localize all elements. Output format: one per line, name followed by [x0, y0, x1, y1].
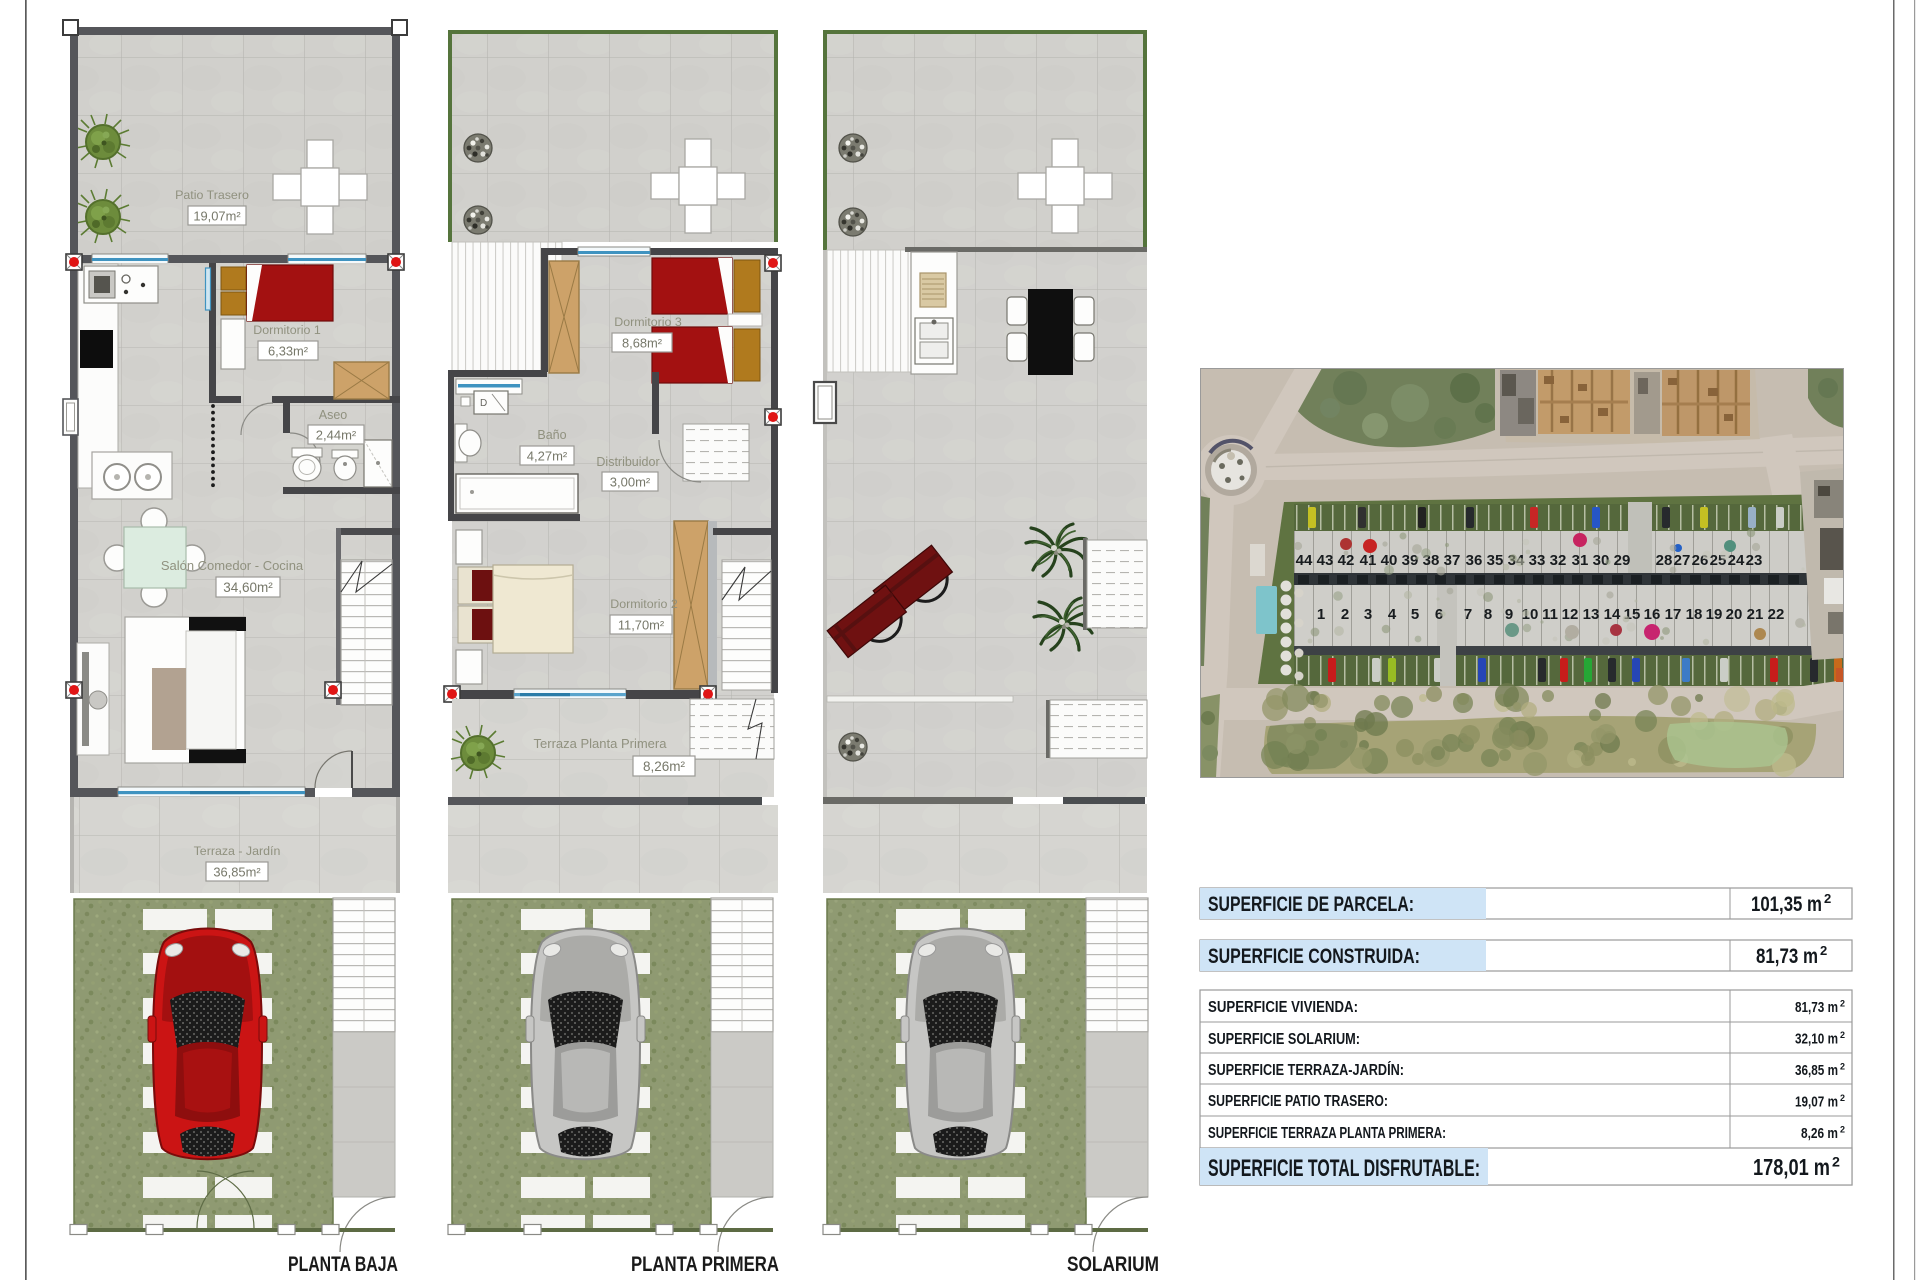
svg-text:SOLARIUM: SOLARIUM [1067, 1252, 1159, 1276]
svg-text:SUPERFICIE TERRAZA-JARDÍN:: SUPERFICIE TERRAZA-JARDÍN: [1208, 1062, 1404, 1079]
svg-text:4,27m²: 4,27m² [527, 449, 568, 464]
svg-text:SUPERFICIE CONSTRUIDA:: SUPERFICIE CONSTRUIDA: [1208, 945, 1420, 968]
svg-text:81,73 m: 81,73 m [1795, 1000, 1838, 1016]
svg-text:36,85m²: 36,85m² [213, 865, 261, 880]
svg-text:19,07 m: 19,07 m [1795, 1095, 1838, 1111]
svg-text:SUPERFICIE SOLARIUM:: SUPERFICIE SOLARIUM: [1208, 1031, 1360, 1048]
svg-text:8,26 m: 8,26 m [1801, 1126, 1838, 1142]
svg-text:Dormitorio 1: Dormitorio 1 [253, 323, 321, 337]
svg-text:2: 2 [1840, 1093, 1845, 1103]
svg-text:Salón Comedor - Cocina: Salón Comedor - Cocina [161, 558, 304, 573]
svg-text:2,44m²: 2,44m² [316, 428, 357, 443]
svg-text:Distribuidor: Distribuidor [596, 455, 659, 469]
svg-text:32,10 m: 32,10 m [1795, 1032, 1838, 1048]
svg-text:PLANTA BAJA: PLANTA BAJA [288, 1252, 398, 1276]
svg-text:178,01 m: 178,01 m [1753, 1154, 1830, 1180]
svg-text:36,85 m: 36,85 m [1795, 1063, 1838, 1079]
svg-text:Dormitorio 3: Dormitorio 3 [614, 315, 682, 329]
svg-text:SUPERFICIE PATIO TRASERO:: SUPERFICIE PATIO TRASERO: [1208, 1093, 1388, 1110]
svg-text:SUPERFICIE DE PARCELA:: SUPERFICIE DE PARCELA: [1208, 893, 1414, 916]
svg-text:Terraza - Jardín: Terraza - Jardín [194, 844, 281, 858]
svg-text:2: 2 [1840, 1124, 1845, 1134]
svg-text:11,70m²: 11,70m² [618, 618, 665, 633]
svg-text:2: 2 [1832, 1154, 1840, 1170]
svg-text:PLANTA PRIMERA: PLANTA PRIMERA [631, 1252, 779, 1276]
svg-text:2: 2 [1824, 891, 1831, 906]
svg-text:SUPERFICIE TERRAZA PLANTA PRIM: SUPERFICIE TERRAZA PLANTA PRIMERA: [1208, 1125, 1446, 1142]
svg-text:2: 2 [1840, 1030, 1845, 1040]
svg-text:SUPERFICIE VIVIENDA:: SUPERFICIE VIVIENDA: [1208, 999, 1358, 1016]
svg-text:SUPERFICIE TOTAL DISFRUTABLE:: SUPERFICIE TOTAL DISFRUTABLE: [1208, 1155, 1480, 1182]
svg-text:2: 2 [1840, 1061, 1845, 1071]
svg-text:Aseo: Aseo [319, 408, 348, 422]
svg-text:6,33m²: 6,33m² [268, 344, 309, 359]
svg-text:101,35 m: 101,35 m [1751, 893, 1822, 916]
svg-text:2: 2 [1840, 998, 1845, 1008]
svg-text:D: D [480, 398, 487, 409]
svg-text:3,00m²: 3,00m² [610, 475, 651, 490]
svg-text:Terraza Planta Primera: Terraza Planta Primera [534, 736, 668, 751]
svg-text:2: 2 [1820, 943, 1827, 958]
svg-text:8,26m²: 8,26m² [643, 759, 686, 774]
svg-text:Patio Trasero: Patio Trasero [175, 188, 249, 202]
svg-text:Dormitorio 2: Dormitorio 2 [610, 597, 678, 611]
svg-text:81,73 m: 81,73 m [1756, 945, 1818, 968]
svg-text:Baño: Baño [537, 428, 566, 442]
svg-text:19,07m²: 19,07m² [193, 209, 241, 224]
svg-text:34,60m²: 34,60m² [223, 580, 273, 595]
svg-text:8,68m²: 8,68m² [622, 336, 663, 351]
